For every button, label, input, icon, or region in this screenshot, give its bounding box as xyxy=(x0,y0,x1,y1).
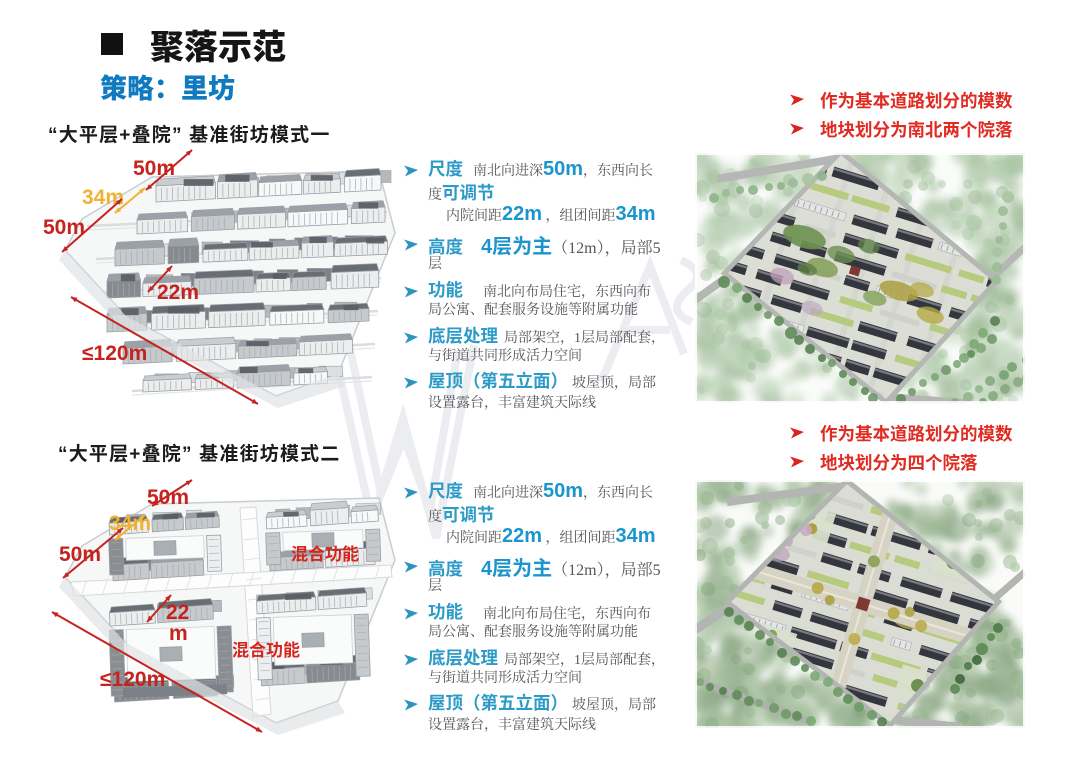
svg-text:22m: 22m xyxy=(157,281,199,304)
svg-text:34m: 34m xyxy=(82,186,124,209)
svg-text:≤120m: ≤120m xyxy=(100,668,165,691)
svg-text:≤120m: ≤120m xyxy=(82,342,147,365)
svg-text:34m: 34m xyxy=(109,512,151,535)
svg-text:混合功能: 混合功能 xyxy=(291,544,359,564)
svg-text:m: m xyxy=(169,622,188,645)
svg-text:50m: 50m xyxy=(133,157,175,180)
svg-text:50m: 50m xyxy=(147,486,189,509)
svg-text:50m: 50m xyxy=(59,543,101,566)
svg-text:22: 22 xyxy=(166,601,189,624)
svg-text:混合功能: 混合功能 xyxy=(232,640,300,660)
svg-text:50m: 50m xyxy=(43,216,85,239)
